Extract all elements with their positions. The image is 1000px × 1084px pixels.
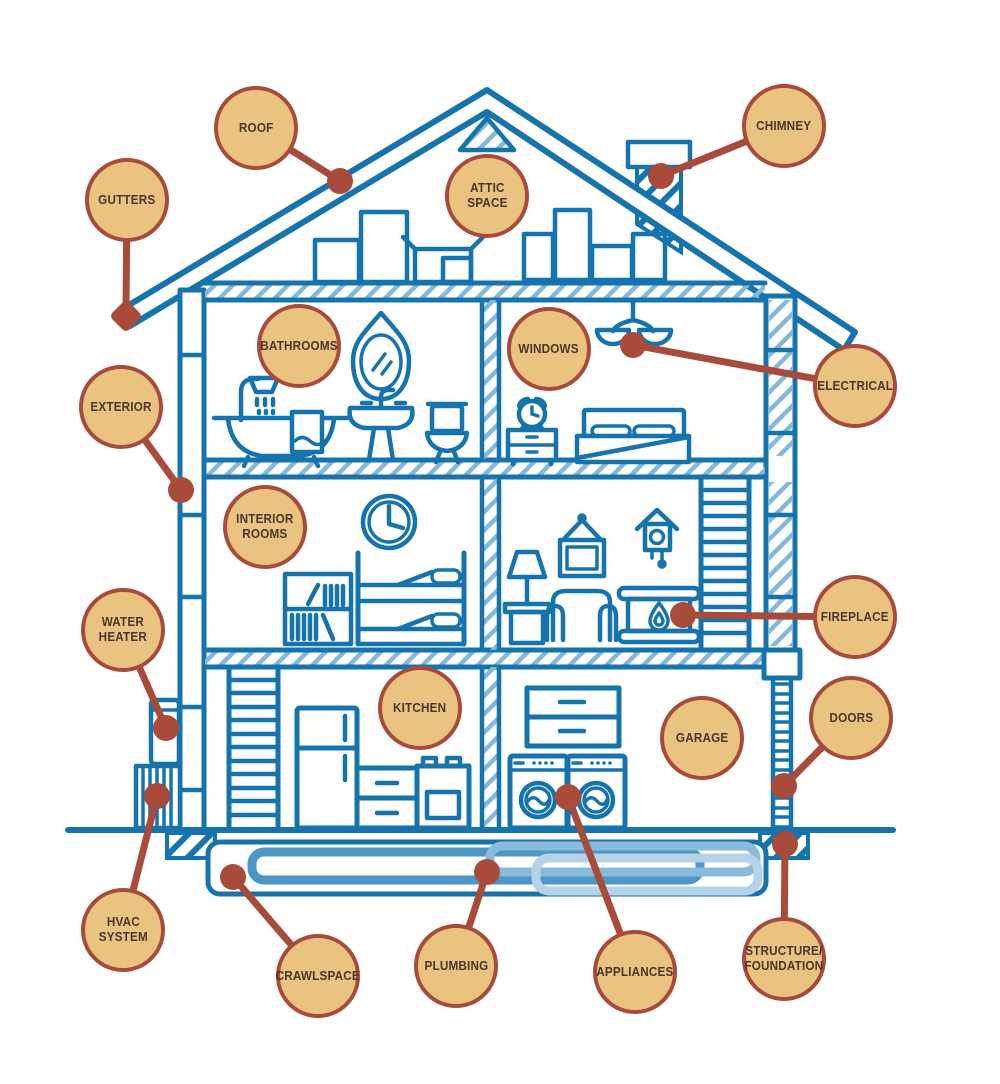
callout-fireplace-label: FIREPLACE	[821, 610, 889, 625]
callout-electrical-label: ELECTRICAL	[817, 379, 893, 394]
pedestal-sink-icon	[350, 390, 413, 460]
callout-interior-rooms: INTERIOR ROOMS	[223, 485, 307, 569]
callout-gutters: GUTTERS	[85, 158, 169, 242]
callout-doors: DOORS	[809, 676, 893, 760]
exterior-wall-left	[180, 290, 204, 830]
callout-appliances-label: APPLIANCES	[596, 965, 673, 980]
bathroom-icons	[214, 313, 467, 466]
garage-door-icon	[764, 650, 800, 830]
callout-roof-label: ROOF	[239, 121, 274, 136]
callout-hvac-system-label: HVAC SYSTEM	[98, 915, 147, 944]
toilet-icon	[427, 404, 467, 462]
interior-room-icons	[285, 496, 464, 644]
callout-chimney: CHIMNEY	[742, 84, 826, 168]
callout-crawlspace-label: CRAWLSPACE	[276, 969, 360, 984]
callout-exterior: EXTERIOR	[79, 365, 163, 449]
shower-head-icon	[241, 378, 278, 420]
stove-icon	[417, 758, 469, 828]
callout-attic-space-label: ATTIC SPACE	[467, 181, 507, 210]
callout-garage-label: GARAGE	[676, 731, 728, 746]
alarm-clock-icon	[519, 399, 545, 430]
callout-bathrooms-label: BATHROOMS	[260, 339, 337, 354]
callout-electrical: ELECTRICAL	[813, 344, 897, 428]
callout-fireplace: FIREPLACE	[813, 575, 897, 659]
garage-icons	[510, 650, 800, 830]
callout-doors-label: DOORS	[829, 711, 873, 726]
callout-windows-label: WINDOWS	[519, 342, 579, 357]
floor-lamp-icon	[505, 552, 549, 643]
callout-chimney-label: CHIMNEY	[756, 119, 811, 134]
staircase-upper-icon	[701, 478, 749, 650]
towel-icon	[292, 412, 324, 452]
callout-garage: GARAGE	[660, 696, 744, 780]
picture-frame-icon	[560, 516, 604, 577]
callout-kitchen-label: KITCHEN	[393, 701, 446, 716]
first-floor-band	[205, 650, 765, 667]
living-room-icons	[505, 510, 699, 643]
callout-hvac-system: HVAC SYSTEM	[81, 888, 165, 972]
home-cross-section-diagram: ROOF CHIMNEY GUTTERS ATTIC SPACE BATHROO…	[0, 0, 1000, 1084]
kitchen-cabinet-icon	[357, 768, 417, 828]
wall-clock-icon	[363, 496, 415, 548]
callout-water-heater-label: WATER HEATER	[99, 615, 147, 644]
callout-plumbing-label: PLUMBING	[424, 959, 488, 974]
callout-gutters-label: GUTTERS	[98, 193, 155, 208]
callout-interior-rooms-label: INTERIOR ROOMS	[236, 512, 293, 541]
callout-attic-space: ATTIC SPACE	[445, 154, 529, 238]
bookshelf-icon	[285, 574, 351, 644]
refrigerator-icon	[297, 708, 357, 828]
callout-water-heater: WATER HEATER	[81, 588, 165, 672]
callout-structure-foundation-label: STRUCTURE/ FOUNDATION	[745, 944, 824, 973]
exterior-wall-right	[766, 296, 795, 650]
callout-windows: WINDOWS	[507, 307, 591, 391]
callout-appliances: APPLIANCES	[593, 930, 677, 1014]
callout-crawlspace: CRAWLSPACE	[276, 934, 360, 1018]
callout-kitchen: KITCHEN	[378, 666, 462, 750]
staircase-lower-icon	[229, 668, 278, 830]
cuckoo-clock-icon	[637, 510, 677, 567]
armchair-icon	[547, 591, 616, 640]
mirror-icon	[353, 313, 409, 399]
interior-wall	[482, 300, 499, 830]
attic-floor-band	[205, 283, 765, 300]
callout-structure-foundation: STRUCTURE/ FOUNDATION	[742, 917, 826, 1001]
nightstand-icon	[508, 430, 556, 464]
bed-icon	[577, 410, 689, 462]
bunk-bed-icon	[358, 553, 464, 644]
callout-exterior-label: EXTERIOR	[90, 400, 151, 415]
garage-cabinet-icon	[527, 688, 619, 746]
callout-bathrooms: BATHROOMS	[257, 304, 341, 388]
callout-plumbing: PLUMBING	[414, 924, 498, 1008]
callout-roof: ROOF	[214, 86, 298, 170]
